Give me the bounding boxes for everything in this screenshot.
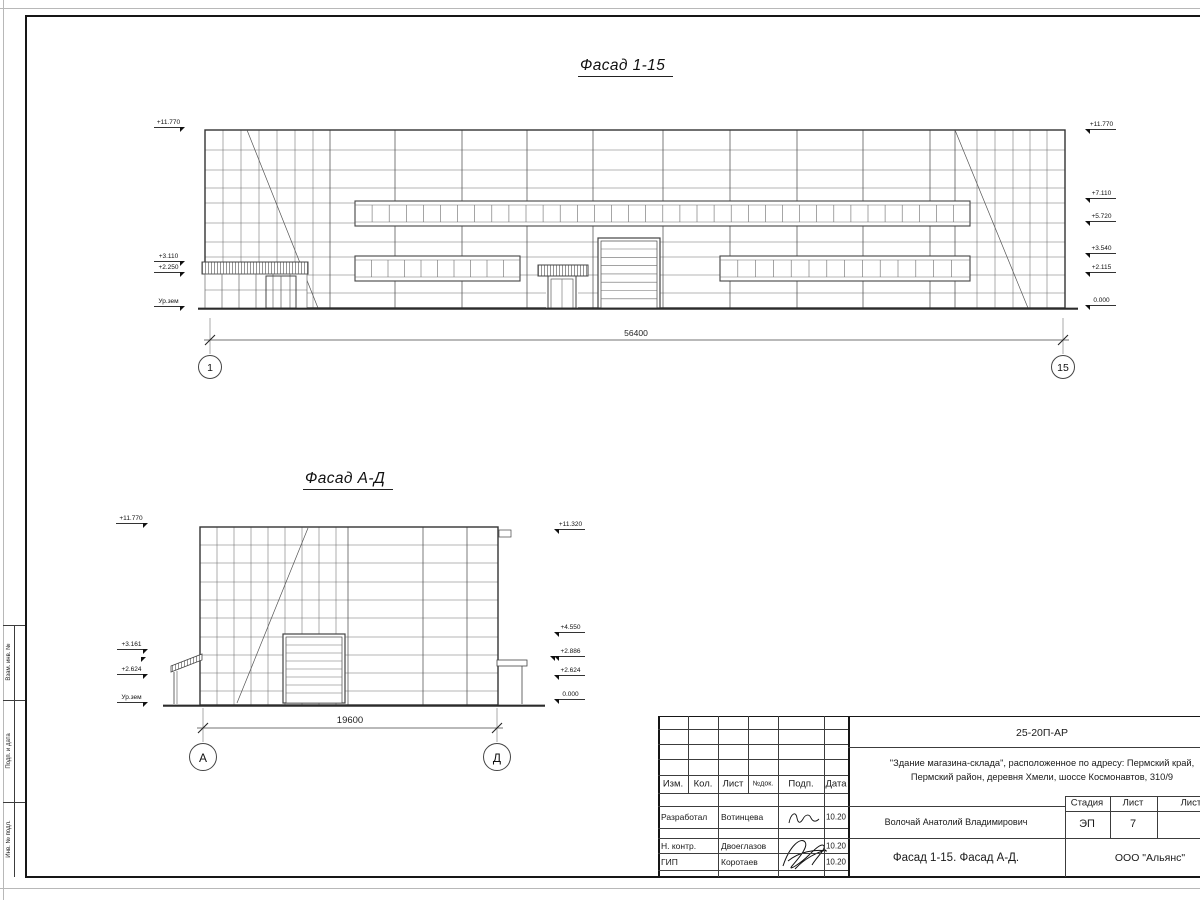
level-triangle-icon — [180, 272, 185, 277]
dimension-value: 56400 — [624, 328, 648, 338]
frame-bottom — [25, 876, 1200, 878]
col-list: Лист — [723, 779, 744, 790]
level-triangle-icon — [554, 675, 559, 680]
frame-top — [25, 15, 1200, 17]
level-triangle-icon — [180, 306, 185, 311]
level-triangle-icon — [1085, 221, 1090, 226]
sheets-label: Листов — [1181, 798, 1200, 809]
level-marker: 0.000 — [1087, 297, 1116, 306]
side-stamp-label: Инв. № подл. — [6, 804, 12, 874]
level-value: +11.770 — [119, 515, 142, 522]
facade-ad-title: Фасад А-Д — [303, 470, 393, 490]
level-value: 0.000 — [1093, 297, 1109, 304]
level-triangle-icon — [1085, 272, 1090, 277]
side-stamp-label: Подп. и дата — [6, 716, 12, 786]
level-marker: Ур.зем — [154, 298, 183, 307]
level-triangle-icon — [554, 699, 559, 704]
side-stamp-label: Взам. инв. № — [6, 627, 12, 697]
level-marker: +11.770 — [1087, 121, 1116, 130]
axis-label-1: 1 — [207, 362, 213, 374]
sheet-label: Лист — [1123, 798, 1144, 809]
col-izm: Изм. — [663, 779, 683, 790]
row-role: ГИП — [661, 857, 678, 867]
company-name: ООО "Альянс" — [1115, 852, 1185, 864]
frame-left — [25, 15, 27, 877]
level-value: +2.624 — [121, 666, 141, 673]
dimension-f1: 56400 1 15 — [199, 318, 1075, 379]
dimension-fad: 19600 А Д — [190, 708, 511, 771]
level-marker: +2.250 — [154, 264, 183, 273]
row-name: Двоеглазов — [721, 841, 766, 851]
axis-label-a: А — [199, 751, 207, 765]
level-marker: +3.540 — [1087, 245, 1116, 254]
level-triangle-icon — [1085, 129, 1090, 134]
level-triangle-icon — [554, 632, 559, 637]
signature-large — [783, 841, 827, 869]
row-name: Вотинцева — [721, 812, 763, 822]
signature-votintseva — [789, 814, 819, 823]
level-marker: +3.110 — [154, 253, 183, 262]
level-marker: +3.161 — [117, 641, 146, 650]
row-role: Разработал — [661, 812, 707, 822]
level-value: +2.624 — [560, 667, 580, 674]
author-name: Волочай Анатолий Владимирович — [885, 817, 1028, 827]
level-marker: +2.115 — [1087, 264, 1116, 273]
col-data: Дата — [825, 779, 846, 790]
level-marker: +5.720 — [1087, 213, 1116, 222]
level-triangle-icon — [180, 127, 185, 132]
col-kol: Кол. — [694, 779, 713, 790]
col-ndok: №док. — [753, 781, 774, 788]
level-marker: +11.770 — [154, 119, 183, 128]
sheet-title: Фасад 1-15. Фасад А-Д. — [893, 852, 1019, 864]
level-value: +11.320 — [559, 521, 582, 528]
level-value: 0.000 — [562, 691, 578, 698]
level-value: +2.250 — [158, 264, 178, 271]
project-description-line2: Пермский район, деревня Хмели, шоссе Кос… — [911, 772, 1173, 782]
level-value: +7.110 — [1092, 190, 1112, 197]
side-stamp-divider — [14, 625, 15, 877]
row-role: Н. контр. — [661, 841, 696, 851]
level-value: +5.720 — [1091, 213, 1111, 220]
level-value: +4.550 — [560, 624, 580, 631]
level-triangle-icon — [1085, 253, 1090, 258]
stage-value: ЭП — [1079, 818, 1095, 830]
level-triangle-icon — [143, 649, 148, 654]
level-marker: +2.624 — [556, 667, 585, 676]
paper-edge-bottom — [0, 888, 1200, 889]
col-podp: Подп. — [788, 779, 813, 790]
level-value: Ур.зем — [121, 694, 141, 701]
level-value: +3.161 — [121, 641, 141, 648]
level-marker: Ур.зем — [117, 694, 146, 703]
paper-edge-left — [3, 0, 4, 900]
level-marker: +11.320 — [556, 521, 585, 530]
sheet-value: 7 — [1130, 818, 1136, 830]
level-triangle-icon — [1085, 305, 1090, 310]
drawing-sheet: { "f1": { "title": "Фасад 1-15", "dim": … — [0, 0, 1200, 900]
level-marker: +2.624 — [117, 666, 146, 675]
level-triangle-icon — [141, 657, 146, 662]
level-value: +2.886 — [560, 648, 580, 655]
level-triangle-icon — [143, 702, 148, 707]
level-triangle-icon — [550, 656, 555, 661]
row-name: Коротаев — [721, 857, 758, 867]
level-value: +11.770 — [1090, 121, 1113, 128]
row-date: 10.20 — [826, 813, 846, 822]
dimension-value: 19600 — [337, 715, 363, 726]
level-marker: +4.550 — [556, 624, 585, 633]
facade-1-15-title: Фасад 1-15 — [578, 57, 673, 77]
level-triangle-icon — [1085, 198, 1090, 203]
level-marker: +2.886 — [556, 648, 585, 657]
level-triangle-icon — [143, 523, 148, 528]
stage-label: Стадия — [1071, 798, 1103, 809]
level-value: +2.115 — [1092, 264, 1112, 271]
row-date: 10.20 — [826, 841, 846, 850]
level-value: +3.110 — [159, 253, 179, 260]
level-triangle-icon — [143, 674, 148, 679]
level-value: +11.770 — [157, 119, 180, 126]
row-date: 10.20 — [826, 857, 846, 866]
level-triangle-icon — [554, 529, 559, 534]
level-marker: 0.000 — [556, 691, 585, 700]
axis-label-15: 15 — [1057, 362, 1069, 374]
paper-edge-top — [0, 8, 1200, 9]
level-value: Ур.зем — [158, 298, 178, 305]
level-marker: +11.770 — [116, 515, 146, 524]
document-code: 25-20П-АР — [1016, 727, 1068, 739]
project-description-line1: "Здание магазина-склада", расположенное … — [890, 758, 1194, 768]
level-marker: +7.110 — [1087, 190, 1116, 199]
level-value: +3.540 — [1091, 245, 1111, 252]
axis-label-d: Д — [493, 751, 501, 765]
